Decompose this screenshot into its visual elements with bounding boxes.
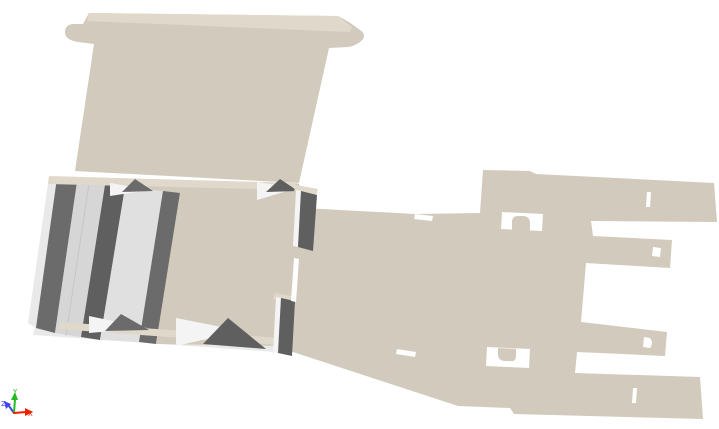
axis-y-label: Y (12, 388, 18, 396)
wall-end-front-dark (278, 298, 295, 356)
axis-x-line (14, 412, 26, 413)
axis-x-label: X (28, 410, 33, 418)
scene-svg: YZX (0, 0, 719, 429)
axis-y-line (14, 399, 15, 413)
notch-prong-mid-upper (652, 247, 661, 257)
lid-panel (65, 13, 364, 183)
viewport-3d[interactable]: YZX (0, 0, 719, 429)
window-upper-tab (512, 216, 530, 231)
axis-z-label: Z (1, 400, 6, 408)
window-lower-tab (498, 348, 516, 361)
